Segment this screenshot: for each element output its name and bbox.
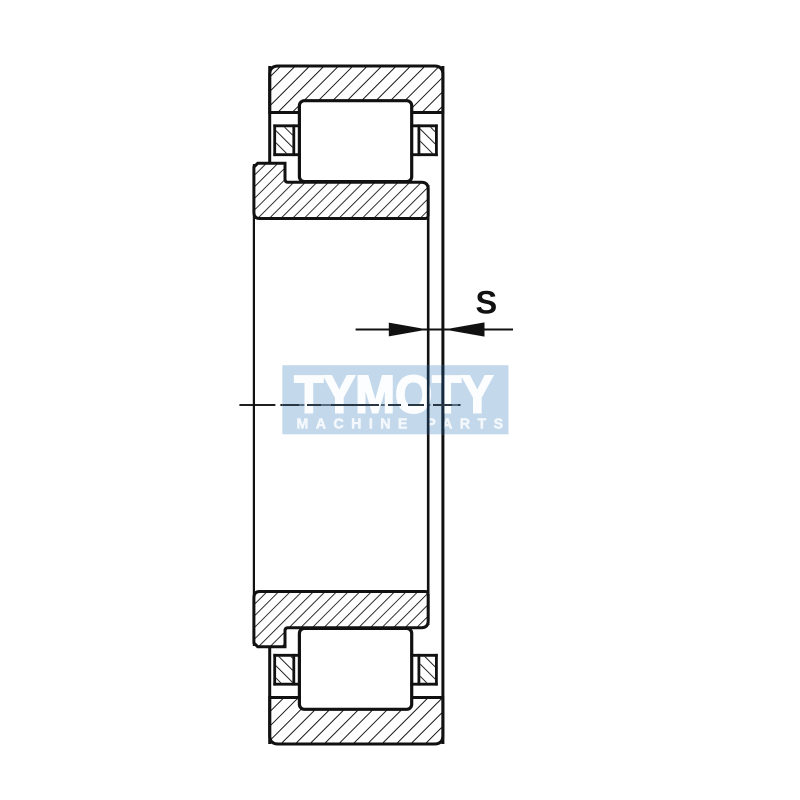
svg-text:S: S	[475, 285, 497, 321]
svg-text:TYMOTY: TYMOTY	[294, 366, 493, 425]
